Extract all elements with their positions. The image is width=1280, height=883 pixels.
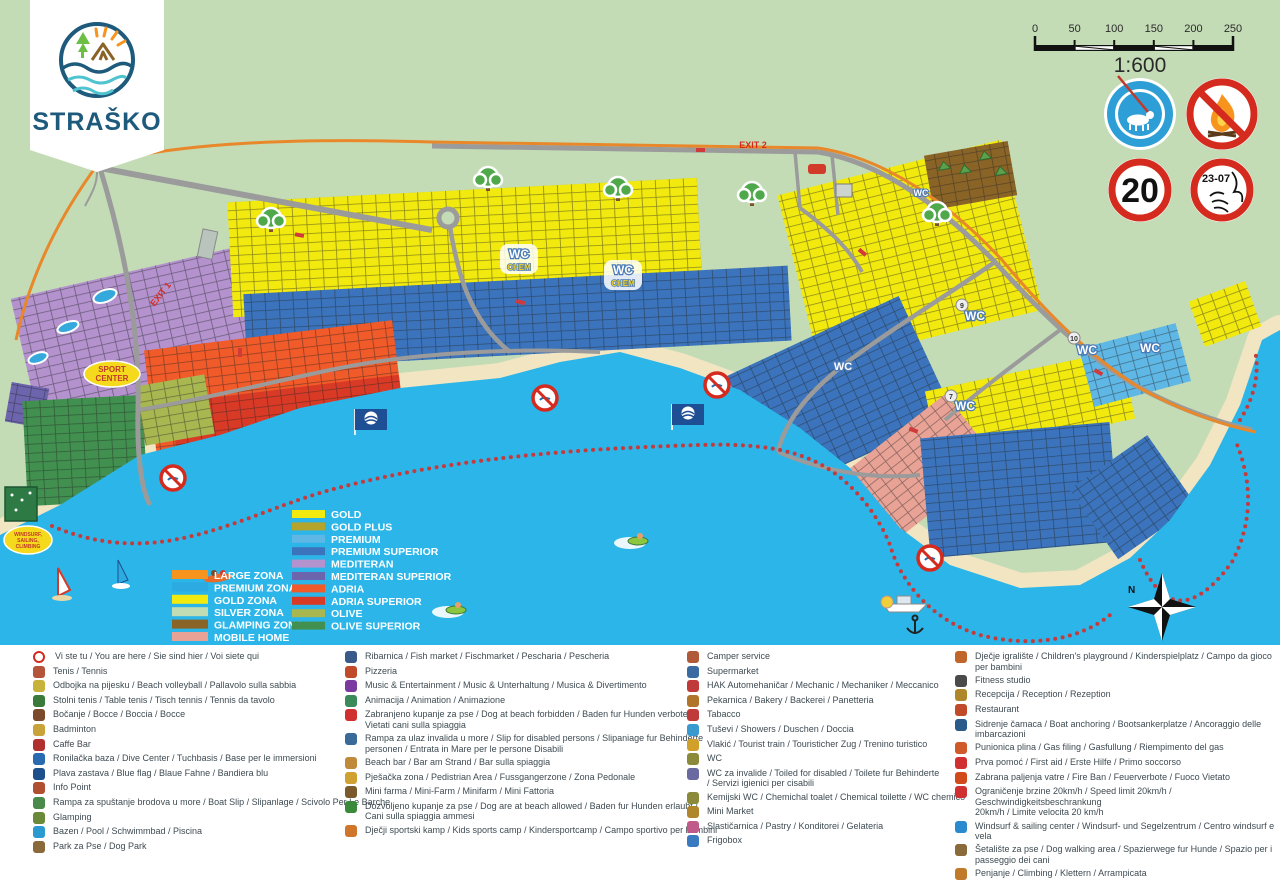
legend-item: Zabrana paljenja vatre / Fire Ban / Feue… — [955, 772, 1280, 784]
badminton-icon — [33, 724, 45, 736]
legend-item: Frigobox — [687, 835, 965, 847]
svg-text:100: 100 — [1105, 23, 1123, 35]
first-aid-icon — [955, 757, 967, 769]
bocce-icon — [33, 709, 45, 721]
frigobox-icon — [687, 835, 699, 847]
svg-text:0: 0 — [1032, 23, 1038, 35]
svg-text:PREMIUM ZONA: PREMIUM ZONA — [214, 582, 297, 594]
legend-item: Prva pomoć / First aid / Erste Hilfe / P… — [955, 757, 1280, 769]
windsurf-center-label: WINDSURF, SAILING, CLIMBING — [4, 526, 52, 554]
legend-item: Tabacco — [687, 709, 965, 721]
wc-marker[interactable]: WC — [834, 361, 852, 373]
svg-text:OLIVE: OLIVE — [331, 608, 363, 620]
kids-sports-camp-icon — [345, 825, 357, 837]
wc-chem-marker[interactable]: WCCHEM — [500, 244, 538, 274]
legend-item: Caffe Bar — [33, 739, 390, 751]
info-point-icon — [33, 782, 45, 794]
legend-item: WC — [687, 753, 965, 765]
quiet-hours-sign: 23-07 — [1190, 158, 1254, 222]
chemical-wc-icon — [687, 792, 699, 804]
fish-market-icon — [345, 651, 357, 663]
legend-item: Glamping — [33, 812, 390, 824]
svg-text:23-07: 23-07 — [1202, 173, 1230, 185]
svg-text:GOLD ZONA: GOLD ZONA — [214, 595, 277, 607]
legend-column-2: Ribarnica / Fish market / Fischmarket / … — [345, 651, 717, 839]
legend-item: Ograničenje brzine 20km/h / Speed limit … — [955, 786, 1280, 818]
legend-item: Recepcija / Reception / Rezeption — [955, 689, 1280, 701]
wc-icon — [687, 753, 699, 765]
compass-north-label: N — [1128, 585, 1135, 596]
svg-text:200: 200 — [1184, 23, 1202, 35]
svg-text:9: 9 — [960, 303, 964, 310]
legend-item: Slastičarnica / Pastry / Konditorei / Ge… — [687, 821, 965, 833]
legend-item: Sidrenje čamaca / Boat anchoring / Boots… — [955, 719, 1280, 740]
legend-item: Ribarnica / Fish market / Fischmarket / … — [345, 651, 717, 663]
roundabout — [439, 209, 457, 227]
life-buoy-icon — [881, 596, 893, 608]
wc-marker[interactable]: WC — [1140, 341, 1160, 355]
showers-icon — [687, 724, 699, 736]
svg-text:7: 7 — [949, 394, 953, 401]
svg-text:PREMIUM SUPERIOR: PREMIUM SUPERIOR — [331, 546, 439, 558]
legend-item: Plava zastava / Blue flag / Blaue Fahne … — [33, 768, 390, 780]
pedestrian-zone-icon — [345, 772, 357, 784]
beach-volleyball-icon — [33, 680, 45, 692]
legend-item: Zabranjeno kupanje za pse / Dog at beach… — [345, 709, 717, 730]
speed-limit-icon — [955, 786, 967, 798]
dive-center-icon — [33, 753, 45, 765]
climbing-icon — [955, 868, 967, 880]
svg-text:GOLD: GOLD — [331, 509, 362, 521]
bakery-icon — [687, 695, 699, 707]
svg-text:WC: WC — [1140, 341, 1160, 355]
pizzeria-icon — [345, 666, 357, 678]
beach-bar-icon — [345, 757, 357, 769]
svg-text:10: 10 — [1070, 336, 1078, 343]
svg-text:OLIVE SUPERIOR: OLIVE SUPERIOR — [331, 621, 421, 633]
legend-column-4: Dječje igralište / Children's playground… — [955, 651, 1280, 883]
glamping-icon — [33, 812, 45, 824]
svg-text:150: 150 — [1145, 23, 1163, 35]
svg-text:20: 20 — [1121, 172, 1159, 210]
legend-item: Supermarket — [687, 666, 965, 678]
legend-item: Fitness studio — [955, 675, 1280, 687]
speed-limit-sign: 20 — [1108, 158, 1172, 222]
legend-item: Penjanje / Climbing / Klettern / Arrampi… — [955, 868, 1280, 880]
wc-chem-marker[interactable]: WCCHEM — [604, 260, 642, 290]
wc-marker[interactable]: WC — [914, 188, 929, 198]
svg-text:WC: WC — [613, 263, 633, 277]
svg-text:WC: WC — [955, 399, 975, 413]
reception-icon — [955, 689, 967, 701]
svg-text:ADRIA: ADRIA — [331, 583, 365, 595]
legend-item: Camper service — [687, 651, 965, 663]
tennis-icon — [33, 666, 45, 678]
legend-item: Punionica plina / Gas filing / Gasfullun… — [955, 742, 1280, 754]
campsite-map: N WCCHEM WCCHEM WC WC9 WC10 WC7 WC WC EX… — [0, 0, 1280, 645]
svg-text:SPORT: SPORT — [98, 365, 126, 374]
legend-item: WC za invalide / Toiled for disabled / T… — [687, 768, 965, 789]
legend-area: Vi ste tu / You are here / Sie sind hier… — [0, 645, 1280, 839]
pool-icon — [33, 826, 45, 838]
svg-text:WC: WC — [834, 361, 852, 373]
wc-disabled-icon — [687, 768, 699, 780]
camper-service-icon — [687, 651, 699, 663]
svg-text:MOBILE HOME: MOBILE HOME — [214, 632, 289, 644]
table-tennis-icon — [33, 695, 45, 707]
svg-text:250: 250 — [1224, 23, 1242, 35]
legend-item: Rampa za spuštanje brodova u more / Boat… — [33, 797, 390, 809]
svg-text:PREMIUM: PREMIUM — [331, 534, 381, 546]
svg-text:SILVER ZONA: SILVER ZONA — [214, 607, 284, 619]
legend-item: Badminton — [33, 724, 390, 736]
sport-center-label: SPORT CENTER — [84, 361, 140, 387]
dog-park-icon — [33, 841, 45, 853]
mini-market-icon — [687, 806, 699, 818]
svg-text:MEDITERAN SUPERIOR: MEDITERAN SUPERIOR — [331, 571, 452, 583]
tabacco-icon — [687, 709, 699, 721]
map-svg: N WCCHEM WCCHEM WC WC9 WC10 WC7 WC WC EX… — [0, 0, 1280, 645]
no-open-fire-sign — [1186, 78, 1258, 150]
legend-item: Mini farma / Mini-Farm / Minifarm / Mini… — [345, 786, 717, 798]
legend-item: Info Point — [33, 782, 390, 794]
svg-text:GLAMPING ZONA: GLAMPING ZONA — [214, 620, 304, 632]
svg-text:ADRIA SUPERIOR: ADRIA SUPERIOR — [331, 596, 422, 608]
legend-item: Restaurant — [955, 704, 1280, 716]
legend-item: Pizzeria — [345, 666, 717, 678]
legend-item: Vlakić / Tourist train / Touristicher Zu… — [687, 739, 965, 751]
legend-item: Bočanje / Bocce / Boccia / Bocce — [33, 709, 390, 721]
svg-text:CHEM: CHEM — [611, 279, 635, 288]
climbing-wall — [5, 487, 37, 521]
svg-text:LARGE ZONA: LARGE ZONA — [214, 570, 284, 582]
fire-ban-icon — [955, 772, 967, 784]
legend-item: Odbojka na pijesku / Beach volleyball / … — [33, 680, 390, 692]
legend-item: Beach bar / Bar am Strand / Bar sulla sp… — [345, 757, 717, 769]
legend-item: Animacija / Animation / Animazione — [345, 695, 717, 707]
tourist-train-icon — [687, 739, 699, 751]
legend-item: Dozvoljeno kupanje za pse / Dog are at b… — [345, 801, 717, 822]
music-entertainment-icon — [345, 680, 357, 692]
caffe-bar-icon — [33, 739, 45, 751]
blue-flag-icon — [33, 768, 45, 780]
no-dogs-beach-icon — [345, 709, 357, 721]
svg-text:WC: WC — [965, 309, 985, 323]
svg-text:WC: WC — [1077, 343, 1097, 357]
fitness-icon — [955, 675, 967, 687]
legend-item: Ronilačka baza / Dive Center / Tuchbasis… — [33, 753, 390, 765]
animation-icon — [345, 695, 357, 707]
boat-anchoring-icon — [955, 719, 967, 731]
svg-text:CENTER: CENTER — [96, 374, 129, 383]
svg-text:CHEM: CHEM — [507, 263, 531, 272]
legend-item: Pješačka zona / Pedistrian Area / Fussga… — [345, 772, 717, 784]
svg-text:CLIMBING: CLIMBING — [16, 544, 41, 550]
logo-title: STRAŠKO — [32, 106, 161, 136]
supermarket-icon — [687, 666, 699, 678]
you-are-here-icon — [33, 651, 45, 663]
pastry-icon — [687, 821, 699, 833]
mechanic-icon — [687, 680, 699, 692]
restaurant-icon — [955, 704, 967, 716]
legend-item: Vi ste tu / You are here / Sie sind hier… — [33, 651, 390, 663]
legend-item: Tenis / Tennis — [33, 666, 390, 678]
windsurf-center-icon — [955, 821, 967, 833]
mini-farm-icon — [345, 786, 357, 798]
legend-item: Mini Market — [687, 806, 965, 818]
legend-item: Music & Entertainment / Music & Unterhal… — [345, 680, 717, 692]
svg-text:50: 50 — [1068, 23, 1080, 35]
dog-walking-icon — [955, 844, 967, 856]
svg-text:WC: WC — [509, 247, 529, 261]
legend-item: Kemijski WC / Chemichal toalet / Chemica… — [687, 792, 965, 804]
svg-text:GOLD PLUS: GOLD PLUS — [331, 521, 392, 533]
legend-item: Pekarnica / Bakery / Backerei / Panetter… — [687, 695, 965, 707]
disabled-sea-ramp-icon — [345, 733, 357, 745]
gas-filling-icon — [955, 742, 967, 754]
legend-column-1: Vi ste tu / You are here / Sie sind hier… — [33, 651, 390, 855]
playground-icon — [955, 651, 967, 663]
boat-slip-icon — [33, 797, 45, 809]
legend-item: Dječji sportski kamp / Kids sports camp … — [345, 825, 717, 837]
legend-item: Rampa za ulaz invalida u more / Slip for… — [345, 733, 717, 754]
svg-text:WC: WC — [914, 188, 929, 198]
legend-column-3: Camper service Supermarket HAK Automehan… — [687, 651, 965, 850]
legend-item: Tuševi / Showers / Duschen / Doccia — [687, 724, 965, 736]
svg-text:MEDITERAN: MEDITERAN — [331, 559, 393, 571]
legend-item: Šetalište za pse / Dog walking area / Sp… — [955, 844, 1280, 865]
legend-item: Stolni tenis / Table tenis / Tisch tenni… — [33, 695, 390, 707]
legend-item: HAK Automehaničar / Mechanic / Mechanike… — [687, 680, 965, 692]
legend-item: Bazen / Pool / Schwimmbad / Piscina — [33, 826, 390, 838]
exit2-label: EXIT 2 — [739, 140, 767, 150]
scale-ratio: 1:600 — [1114, 54, 1167, 77]
dogs-allowed-beach-icon — [345, 801, 357, 813]
legend-item: Dječje igralište / Children's playground… — [955, 651, 1280, 672]
car-icon — [808, 164, 826, 174]
legend-item: Park za Pse / Dog Park — [33, 841, 390, 853]
